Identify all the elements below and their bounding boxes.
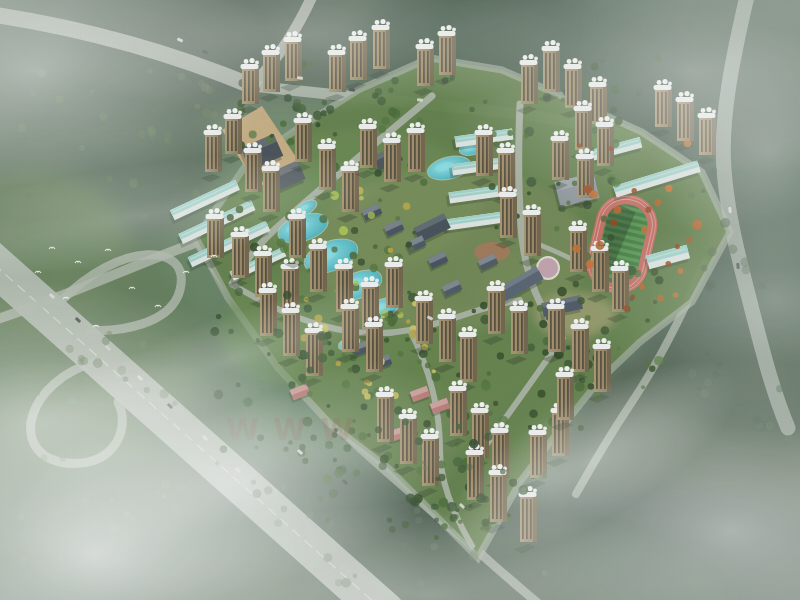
aerial-rendering-canvas: WWW xyxy=(0,0,800,600)
vignette xyxy=(0,0,800,600)
masterplan-scene: WWW xyxy=(0,0,800,600)
